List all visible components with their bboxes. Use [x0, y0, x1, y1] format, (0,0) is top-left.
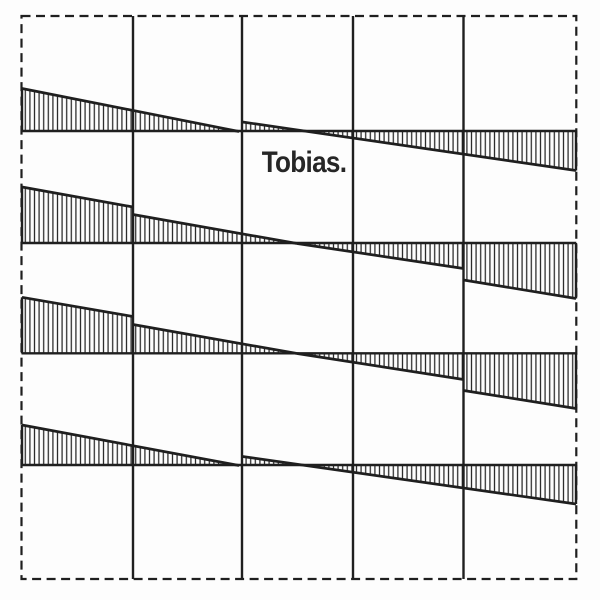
row-lines [22, 131, 577, 465]
album-cover: Tobias. [0, 0, 600, 600]
dashed-border [22, 16, 577, 579]
column-lines [133, 16, 464, 579]
cover-artwork-svg [0, 0, 600, 600]
album-title: Tobias. [262, 148, 347, 178]
hatch-wedge [22, 187, 133, 243]
